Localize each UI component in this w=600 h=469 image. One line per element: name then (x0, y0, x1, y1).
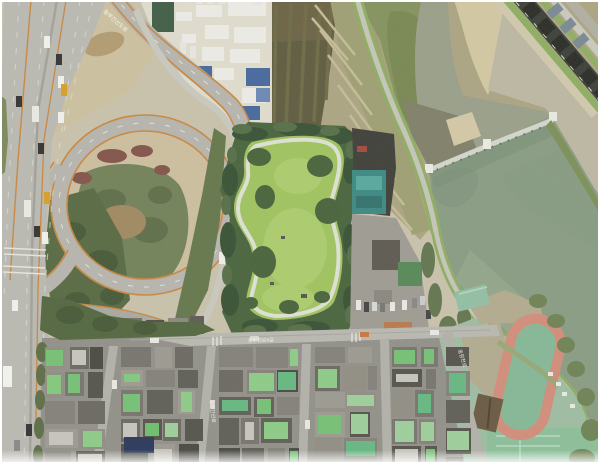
svg-text:중랑천로4길: 중랑천로4길 (248, 337, 274, 344)
